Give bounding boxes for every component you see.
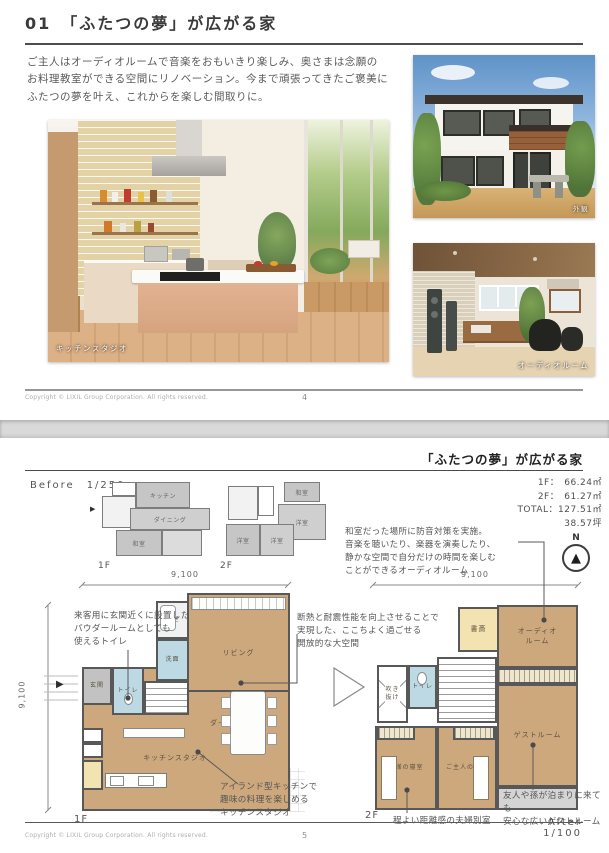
bed bbox=[381, 756, 397, 800]
dining-chair bbox=[221, 697, 231, 709]
garden-tree bbox=[565, 121, 595, 197]
living-counter bbox=[191, 597, 286, 610]
area-tsubo-value: 38.57坪 bbox=[564, 519, 602, 529]
cloud bbox=[533, 77, 569, 89]
shelf-jar bbox=[104, 221, 112, 232]
before-room bbox=[112, 482, 136, 496]
area-2f-label: 2F： bbox=[538, 492, 555, 502]
island-base bbox=[138, 283, 298, 333]
range-hood bbox=[152, 156, 226, 176]
shelf-jar bbox=[166, 191, 172, 202]
room-label: オーディオ ルーム bbox=[518, 627, 558, 646]
room-label: 洗面 bbox=[165, 656, 179, 664]
room-label: キッチン bbox=[150, 491, 176, 500]
cloud bbox=[431, 65, 475, 80]
note-toilet: 来客用に玄関近くに設置した パウダールームとしても 使えるトイレ bbox=[74, 610, 214, 649]
area-1f-row: 1F： 66.24㎡ bbox=[420, 477, 602, 491]
page1-number: 4 bbox=[0, 393, 609, 402]
after-2f-study: 書斎 bbox=[458, 607, 499, 652]
cooking-pot bbox=[186, 258, 204, 271]
dining-chair bbox=[221, 733, 231, 745]
page2-title-rule bbox=[25, 470, 583, 471]
after-2f-guest-room: ゲストルーム bbox=[497, 684, 578, 787]
kitchen-caption: キッチンスタジオ bbox=[56, 343, 128, 354]
room-label: 洋室 bbox=[236, 536, 249, 545]
intro-paragraph: ご主人はオーディオルームで音楽をおもいきり楽しみ、奥さまは念願の お料理教室がで… bbox=[27, 54, 407, 106]
room-label: リビング bbox=[223, 649, 255, 658]
before-washitsu: 和室 bbox=[116, 530, 162, 556]
exterior-caption: 外観 bbox=[573, 203, 589, 213]
sink-fixture bbox=[110, 776, 124, 786]
before-1f-plan: キッチン ダイニング 和室 ▶ 1F bbox=[100, 480, 212, 558]
speaker-cone bbox=[431, 311, 438, 318]
toilet-fixture bbox=[417, 672, 427, 685]
north-label: N bbox=[562, 533, 590, 543]
room-label: ダイニング bbox=[154, 515, 187, 524]
toilet-fixture bbox=[124, 693, 133, 705]
area-total-label: TOTAL： bbox=[517, 505, 558, 515]
north-indicator: N ▲ bbox=[562, 533, 590, 572]
room-label: 玄関 bbox=[90, 682, 104, 690]
before-2f-plan: 和室 洋室 洋室 洋室 2F bbox=[222, 480, 330, 558]
window-mullion bbox=[370, 120, 373, 285]
page2-number: 5 bbox=[0, 831, 609, 840]
kitchen-studio-photo: キッチンスタジオ bbox=[48, 120, 389, 362]
area-summary: 1F： 66.24㎡ 2F： 61.27㎡ TOTAL：127.51㎡ 38.5… bbox=[420, 477, 602, 531]
ceiling-spotlight bbox=[533, 257, 537, 261]
after-2f-void: 吹き 抜け bbox=[377, 665, 408, 723]
north-needle-icon: ▲ bbox=[571, 552, 581, 565]
room-label: ゲストルーム bbox=[514, 731, 562, 740]
area-1f-value: 66.24㎡ bbox=[564, 478, 602, 488]
dining-chair bbox=[221, 715, 231, 727]
shrub bbox=[419, 181, 471, 201]
garden-shrub bbox=[310, 248, 350, 274]
shelf-jar bbox=[150, 190, 157, 202]
shelf-jar bbox=[134, 221, 141, 232]
area-total-row: TOTAL：127.51㎡ bbox=[420, 504, 602, 518]
before-yoshitsu: 洋室 bbox=[226, 524, 260, 556]
guest-closet bbox=[497, 668, 578, 684]
page-title: 01 「ふたつの夢」が広がる家 bbox=[25, 10, 583, 45]
dining-table bbox=[230, 691, 266, 755]
food-item bbox=[254, 261, 262, 266]
note-insulation: 断熱と耐震性能を向上させることで 実現した、ここちよく過ごせる 開放的な大空間 bbox=[297, 612, 452, 651]
note-kitchen-studio: アイランド型キッチンで 趣味の料理を楽しめる キッチンスタジオ bbox=[220, 781, 338, 820]
after-1f-label: 1F bbox=[74, 814, 88, 825]
lounge-chair bbox=[529, 319, 561, 351]
after-1f-stairs bbox=[144, 681, 189, 715]
upper-window bbox=[443, 110, 481, 136]
room-label: 洋室 bbox=[295, 518, 308, 527]
before-yoshitsu: 洋室 bbox=[260, 524, 294, 556]
kitchen-wall-counter bbox=[123, 728, 185, 738]
wall-shelf bbox=[92, 202, 198, 205]
room-label: 吹き 抜け bbox=[385, 686, 399, 702]
before-washitsu-2f: 和室 bbox=[284, 482, 320, 502]
dimension-1f-width: 9,100 bbox=[150, 570, 220, 579]
toaster-appliance bbox=[144, 246, 168, 262]
page1-footer-rule bbox=[25, 389, 583, 391]
shelf-jar bbox=[124, 189, 131, 202]
speaker-cone bbox=[431, 297, 438, 304]
area-1f-label: 1F： bbox=[538, 478, 555, 488]
pantry bbox=[82, 760, 103, 790]
room-label: 和室 bbox=[295, 488, 308, 497]
lower-window bbox=[476, 156, 504, 186]
closet bbox=[82, 728, 103, 743]
audio-room-photo: オーディオルーム bbox=[413, 243, 595, 376]
window-blind bbox=[547, 279, 579, 289]
document-page-spread: 01 「ふたつの夢」が広がる家 ご主人はオーディオルームで音楽をおもいきり楽しみ… bbox=[0, 0, 609, 853]
room-label: 洋室 bbox=[270, 536, 283, 545]
room-label: 和室 bbox=[132, 539, 145, 548]
before-kitchen: キッチン bbox=[136, 482, 190, 508]
house-exterior-photo: 外観 bbox=[413, 55, 595, 218]
bedroom-closet bbox=[377, 726, 415, 740]
page-separator bbox=[0, 420, 609, 438]
terrace-chair bbox=[533, 182, 541, 198]
after-1f-toilet: トイレ bbox=[112, 667, 144, 715]
shelf-jar bbox=[100, 190, 107, 202]
dimension-2f-width: 9,100 bbox=[440, 570, 510, 579]
wood-deck bbox=[304, 282, 389, 312]
side-window bbox=[549, 289, 581, 313]
speaker-tower bbox=[446, 301, 457, 351]
shelf-jar bbox=[112, 192, 118, 202]
compass-circle: ▲ bbox=[562, 544, 590, 572]
after-2f-label: 2F bbox=[365, 810, 379, 821]
shelf-jar bbox=[148, 223, 154, 232]
page2-footer-rule bbox=[25, 822, 583, 823]
area-total-value: 127.51㎡ bbox=[558, 505, 602, 515]
area-2f-value: 61.27㎡ bbox=[564, 492, 602, 502]
shelf-jar bbox=[120, 223, 126, 232]
audio-equipment bbox=[471, 325, 491, 333]
window-mullion bbox=[497, 285, 499, 307]
area-2f-row: 2F： 61.27㎡ bbox=[420, 491, 602, 505]
before-dining: ダイニング bbox=[130, 508, 210, 530]
after-1f-genkan: 玄関 bbox=[82, 667, 112, 705]
entrance-arrow-icon: ▶ bbox=[90, 506, 95, 513]
room-label: キッチンスタジオ bbox=[115, 754, 235, 763]
shelf-jar bbox=[138, 192, 144, 202]
bed bbox=[473, 756, 489, 800]
bedroom-closet bbox=[453, 726, 495, 740]
window-mullion bbox=[515, 285, 517, 307]
before-room bbox=[228, 486, 258, 520]
audio-caption: オーディオルーム bbox=[518, 360, 589, 371]
dining-chair bbox=[267, 697, 277, 709]
ceiling-spotlight bbox=[453, 251, 457, 255]
cooktop bbox=[160, 272, 220, 281]
food-item bbox=[270, 261, 278, 266]
cooktop-fixture bbox=[138, 776, 154, 786]
entrance-arrow-icon: ▶ bbox=[56, 680, 64, 690]
after-2f-audio-room: オーディオ ルーム bbox=[497, 605, 578, 668]
terrace-table bbox=[529, 175, 569, 182]
dimension-1f-height: 9,100 bbox=[17, 681, 26, 709]
section-direction-arrow bbox=[334, 668, 364, 706]
before-2f-label: 2F bbox=[220, 561, 233, 571]
dining-chair bbox=[267, 733, 277, 745]
wall-shelf bbox=[92, 232, 198, 235]
door-frame-line bbox=[528, 152, 530, 193]
range-hood-duct bbox=[176, 120, 202, 156]
after-2f-stairs bbox=[437, 657, 497, 723]
page2-title: 「ふたつの夢」が広がる家 bbox=[290, 449, 583, 468]
ottoman bbox=[561, 327, 583, 351]
before-room bbox=[162, 530, 202, 556]
terrace-table bbox=[348, 240, 380, 258]
before-1f-label: 1F bbox=[98, 561, 111, 571]
closet bbox=[82, 743, 103, 758]
before-room bbox=[258, 486, 274, 516]
roof bbox=[425, 95, 583, 104]
terrace-chair bbox=[555, 182, 563, 198]
dining-chair bbox=[267, 715, 277, 727]
wood-door bbox=[48, 132, 80, 332]
room-label: 書斎 bbox=[471, 625, 487, 634]
